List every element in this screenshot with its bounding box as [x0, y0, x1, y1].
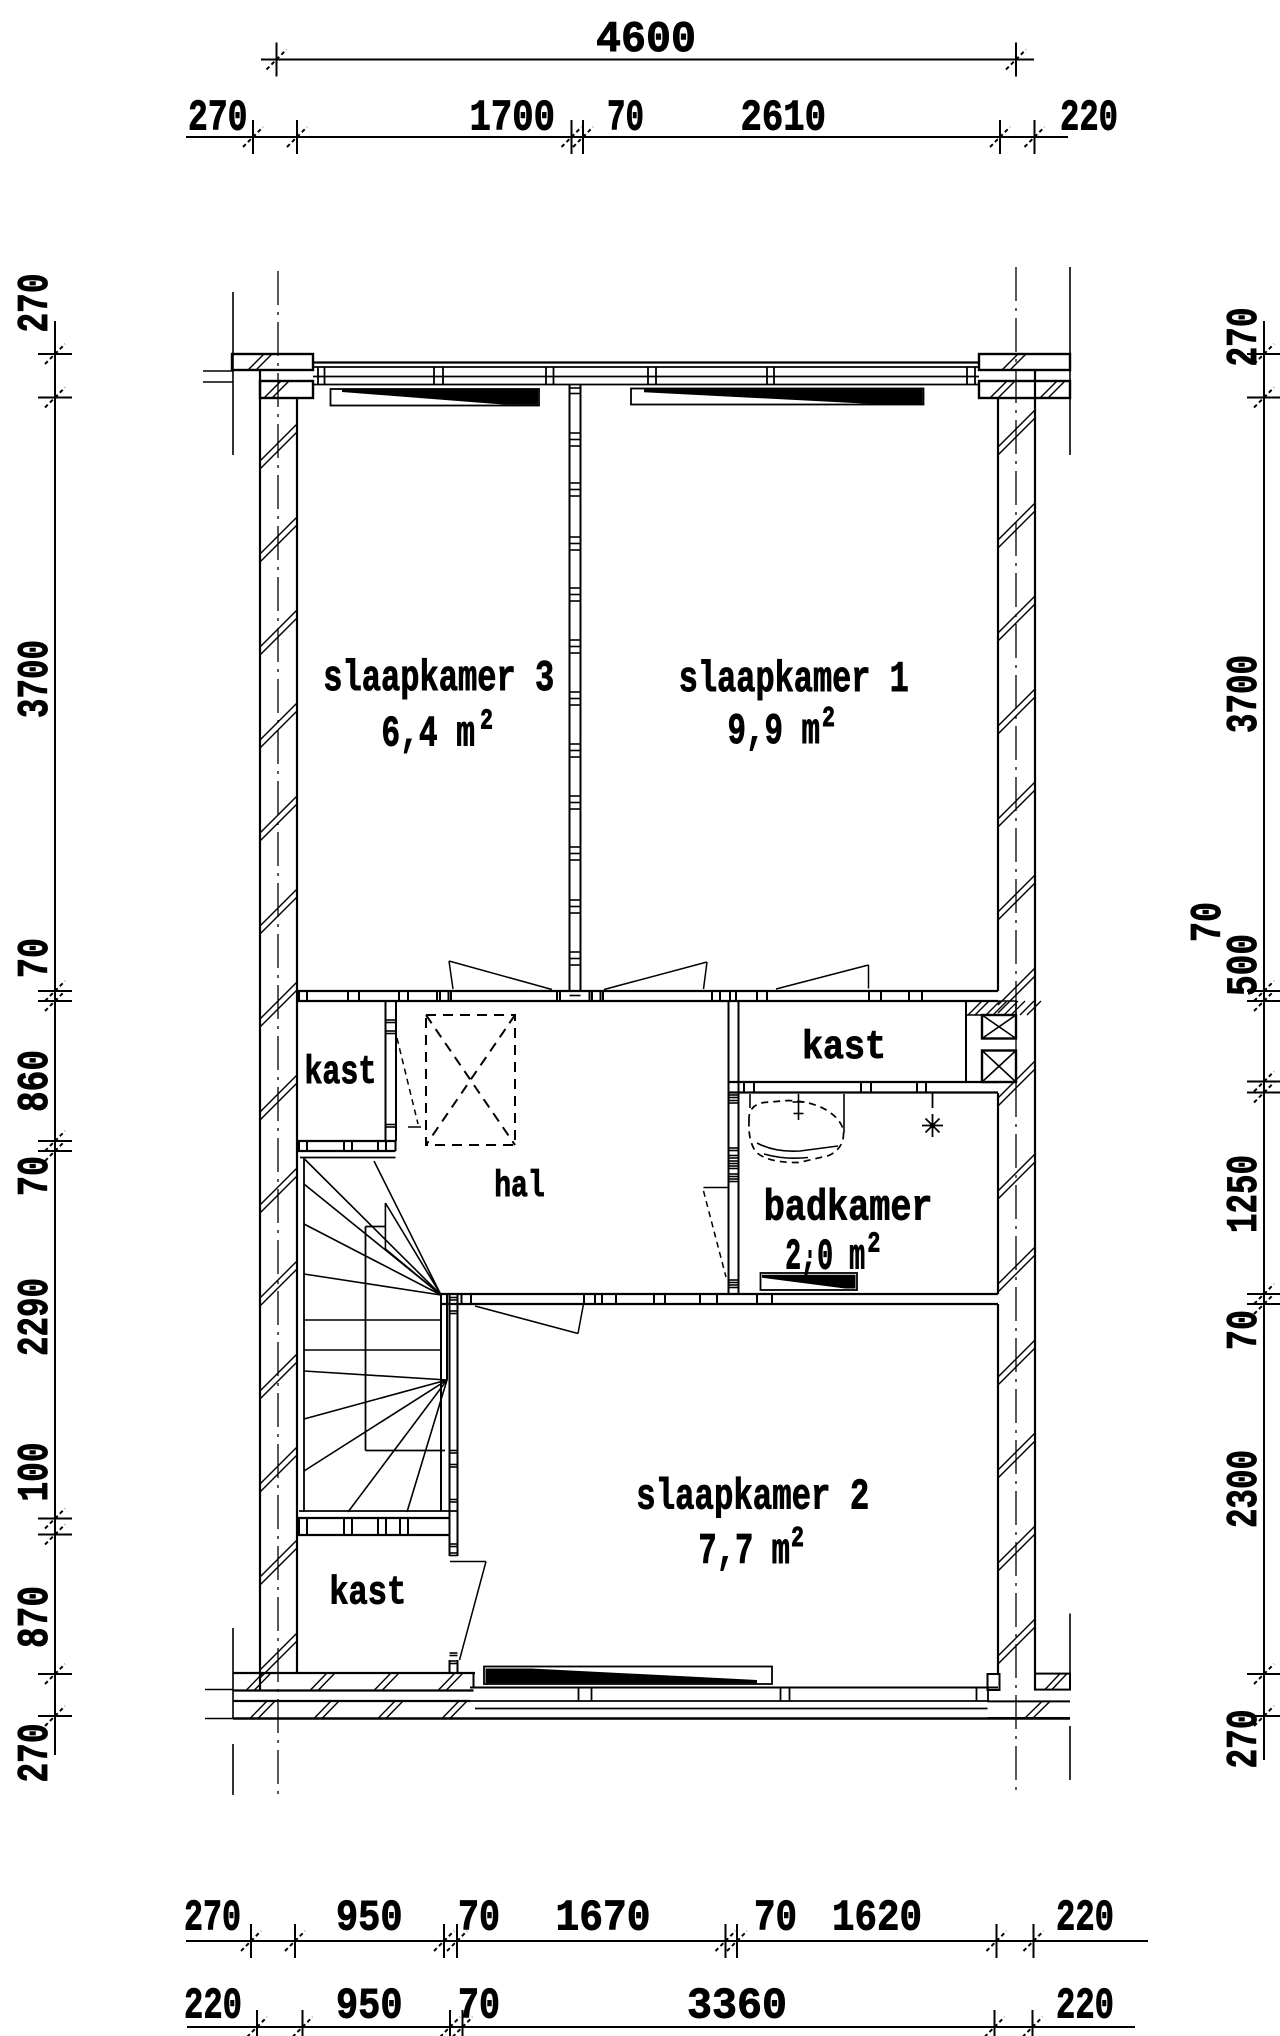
svg-text:slaapkamer 3: slaapkamer 3: [323, 654, 554, 704]
svg-text:9,9 m: 9,9 m: [728, 707, 821, 757]
svg-text:badkamer: badkamer: [764, 1184, 933, 1234]
svg-text:2300: 2300: [1220, 1450, 1270, 1528]
svg-text:1670: 1670: [556, 1894, 651, 1944]
svg-text:270: 270: [11, 1724, 61, 1783]
svg-text:950: 950: [336, 1982, 403, 2032]
svg-text:70: 70: [1220, 1310, 1270, 1350]
svg-text:kast: kast: [304, 1051, 376, 1096]
svg-text:70: 70: [754, 1894, 797, 1944]
svg-text:70: 70: [607, 94, 644, 144]
svg-text:3700: 3700: [11, 640, 61, 718]
svg-text:220: 220: [1056, 1982, 1114, 2032]
svg-text:860: 860: [11, 1050, 61, 1112]
svg-text:3700: 3700: [1220, 655, 1270, 733]
svg-text:slaapkamer 2: slaapkamer 2: [636, 1473, 869, 1523]
svg-text:70: 70: [458, 1894, 500, 1944]
svg-text:6,4 m: 6,4 m: [381, 710, 475, 760]
svg-text:slaapkamer 1: slaapkamer 1: [679, 655, 909, 705]
svg-text:2: 2: [867, 1228, 880, 1261]
svg-text:kast: kast: [802, 1026, 886, 1071]
svg-text:70: 70: [458, 1982, 500, 2032]
svg-text:100: 100: [11, 1443, 61, 1502]
svg-text:270: 270: [11, 274, 61, 333]
svg-text:270: 270: [184, 1894, 241, 1944]
svg-text:2: 2: [480, 705, 493, 738]
svg-text:220: 220: [1056, 1894, 1114, 1944]
svg-text:2610: 2610: [741, 94, 827, 144]
svg-text:4600: 4600: [596, 15, 696, 65]
svg-text:70: 70: [11, 1156, 61, 1196]
svg-text:7,7 m: 7,7 m: [698, 1527, 790, 1577]
svg-text:1250: 1250: [1220, 1155, 1270, 1233]
svg-text:hal: hal: [494, 1166, 545, 1208]
svg-text:2: 2: [791, 1522, 804, 1555]
svg-text:500: 500: [1220, 934, 1270, 996]
svg-text:2290: 2290: [11, 1278, 61, 1356]
svg-text:870: 870: [11, 1586, 61, 1648]
svg-text:220: 220: [184, 1982, 242, 2032]
svg-text:220: 220: [1060, 94, 1118, 144]
svg-text:3360: 3360: [687, 1982, 787, 2032]
svg-text:1620: 1620: [832, 1894, 922, 1944]
svg-text:2: 2: [822, 702, 835, 735]
svg-text:70: 70: [11, 938, 61, 978]
svg-text:270: 270: [188, 94, 248, 144]
svg-text:270: 270: [1220, 1710, 1270, 1769]
svg-text:270: 270: [1220, 308, 1270, 367]
svg-text:kast: kast: [329, 1572, 406, 1617]
svg-text:950: 950: [336, 1894, 403, 1944]
svg-text:1700: 1700: [470, 94, 556, 144]
